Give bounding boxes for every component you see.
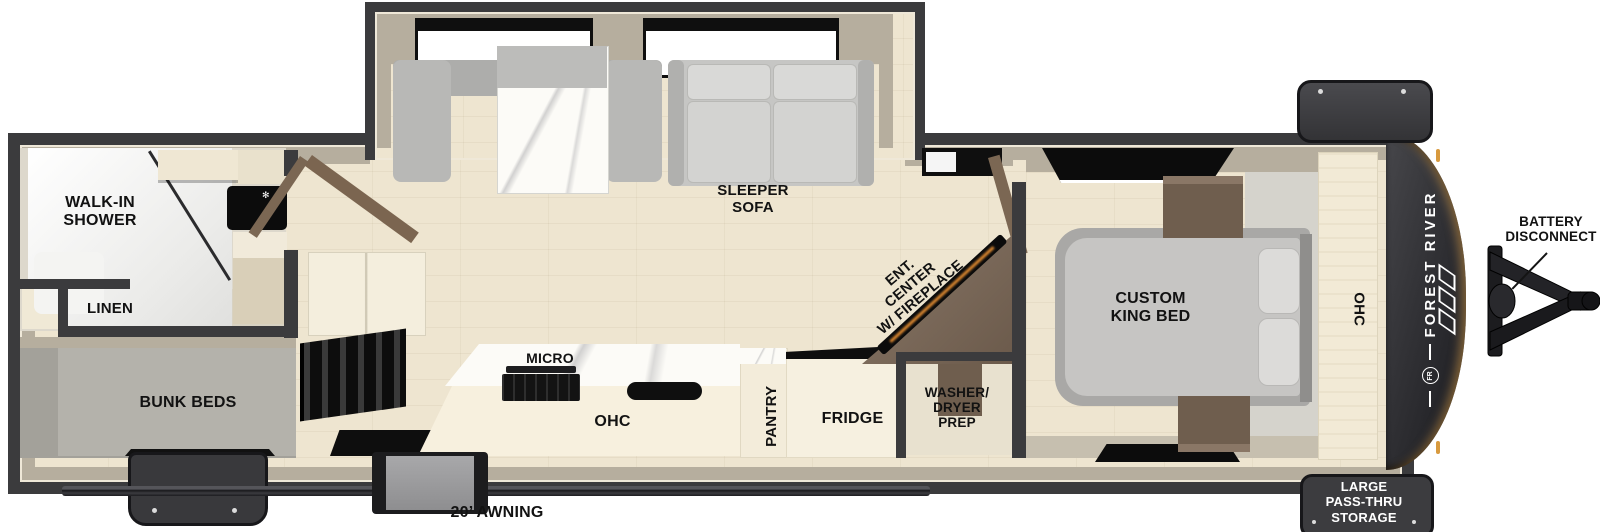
custom-king-bed-label: CUSTOM KING BED [1058, 290, 1243, 325]
brand-dash [1429, 344, 1431, 360]
kitchen-sink [627, 382, 702, 400]
dinette-bench-left [393, 60, 451, 182]
toilet-flush-icon: ✻ [262, 190, 270, 201]
nightstand-bottom [1178, 396, 1250, 452]
bathroom-vanity [233, 232, 287, 258]
micro-label: MICRO [500, 351, 600, 366]
sofa-seat-cushion [687, 101, 771, 183]
rv-floorplan: ✻ [0, 0, 1600, 532]
sofa-armrest-right [858, 60, 874, 186]
bedroom-wardrobe [1318, 152, 1378, 460]
pass-thru-storage-label: LARGE PASS-THRU STORAGE [1300, 479, 1428, 525]
fridge-label: FRIDGE [805, 410, 900, 428]
linen-wall-top [12, 279, 130, 289]
bunk-wardrobe-slats [300, 329, 406, 422]
rivet [1318, 89, 1323, 94]
bathroom-wall-lower [284, 250, 298, 338]
hall-window-glass [926, 152, 956, 172]
brand-stripes-icon [1439, 261, 1456, 339]
sofa-back-cushion [773, 64, 857, 100]
pantry-label: PANTRY [764, 370, 781, 462]
bathroom-vanity-base [233, 258, 287, 324]
nightstand-top [1163, 176, 1243, 238]
dinette-table-runner [497, 46, 607, 88]
slide-out-side-wall-right [879, 14, 893, 148]
sleeper-sofa-label: SLEEPER SOFA [693, 183, 813, 216]
sofa-back-cushion [687, 64, 771, 100]
pantry-counter-top [740, 348, 786, 364]
entry-steps-tread [386, 456, 474, 510]
brand-monogram-icon: FR [1422, 367, 1439, 384]
stove-cooktop [502, 374, 580, 401]
marker-light [1436, 441, 1440, 454]
rivet [232, 508, 237, 513]
sofa-armrest-left [668, 60, 684, 186]
bedroom-wall [1012, 182, 1026, 458]
hitch-a-frame [1452, 240, 1600, 362]
bathroom-cabinet [236, 150, 288, 184]
awning-rail [62, 486, 930, 496]
microwave [506, 366, 576, 373]
brand-dash [1429, 391, 1431, 407]
slide-out-side-wall-left [377, 14, 391, 148]
bedroom-ohc-label: OHC [1350, 263, 1367, 355]
battery-disconnect-label: BATTERY DISCONNECT [1502, 215, 1600, 245]
fridge [786, 354, 898, 458]
bed-pillow [1258, 318, 1300, 386]
linen-label: LINEN [60, 301, 160, 318]
linen-wall-bottom [58, 326, 294, 337]
bed-headboard [1300, 234, 1312, 402]
hall-cabinet [308, 252, 426, 336]
kitchen-ohc-label: OHC [570, 413, 655, 431]
washer-room-wall-top [896, 352, 1014, 361]
washer-dryer-label: WASHER/ DRYER PREP [900, 386, 1014, 431]
rivet [1401, 89, 1406, 94]
sofa-seat-cushion [773, 101, 857, 183]
walk-in-shower-label: WALK-IN SHOWER [30, 194, 170, 229]
marker-light [1436, 149, 1440, 162]
bathroom-cabinet [158, 150, 238, 180]
awning-label: 20’ AWNING [412, 504, 582, 522]
bunk-beds-label: BUNK BEDS [108, 394, 268, 412]
bed-pillow [1258, 248, 1300, 314]
brand-name: FOREST RIVER [1422, 191, 1439, 338]
dinette-bench-right [606, 60, 662, 182]
rivet [152, 508, 157, 513]
